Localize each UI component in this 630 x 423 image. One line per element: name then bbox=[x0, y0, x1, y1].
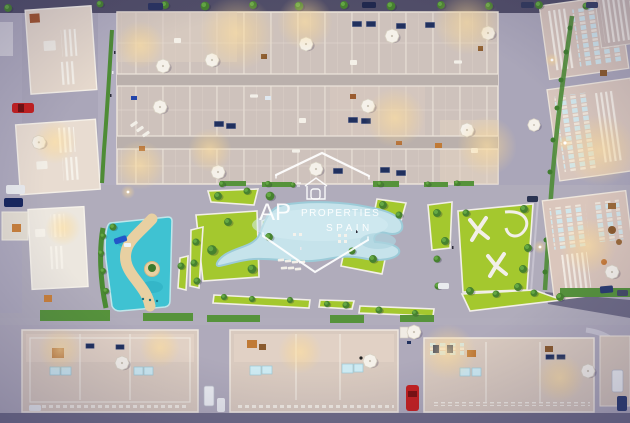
watermark-brand-country: SPAIN bbox=[326, 223, 373, 234]
aerial-render-canvas: AP PROPERTIES SPAIN bbox=[0, 0, 630, 423]
property-aerial-render: AP PROPERTIES SPAIN bbox=[0, 0, 630, 423]
watermark-brand-prefix: AP bbox=[259, 199, 291, 226]
watermark-brand-name: PROPERTIES bbox=[301, 208, 380, 219]
